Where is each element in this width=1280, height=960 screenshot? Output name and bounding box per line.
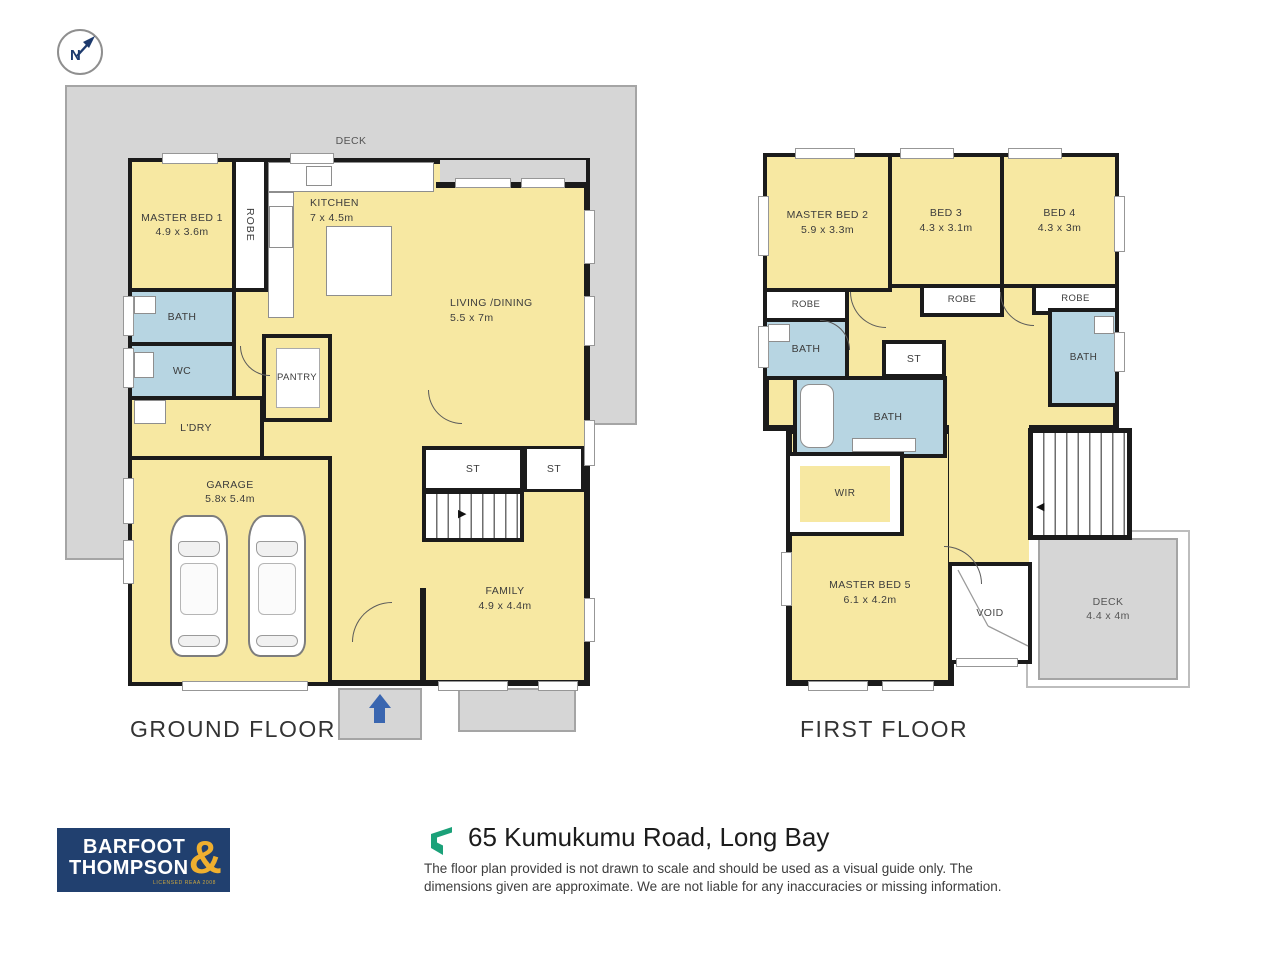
window — [1114, 196, 1125, 252]
window — [584, 598, 595, 642]
window — [584, 420, 595, 466]
rear-patio — [458, 688, 576, 732]
ground-deck-label: DECK — [65, 134, 637, 149]
room-label: MASTER BED 2 — [787, 208, 869, 222]
window — [438, 681, 508, 691]
living-dining-label-block: LIVING /DINING 5.5 x 7m — [450, 296, 533, 325]
stairs-direction-arrow: ▶ — [458, 507, 466, 520]
first-floor-title: FIRST FLOOR — [800, 716, 968, 743]
room-label: BATH — [1070, 351, 1098, 365]
car-icon — [170, 515, 228, 657]
room-label: BED 3 — [930, 206, 962, 220]
room-label: BATH — [874, 410, 903, 424]
room-label: MASTER BED 5 — [790, 578, 950, 593]
room-label: VOID — [976, 606, 1003, 620]
disclaimer-line-2: dimensions given are approximate. We are… — [424, 878, 1004, 896]
kitchen-label-block: KITCHEN 7 x 4.5m — [310, 196, 359, 225]
window — [123, 296, 134, 336]
room-robe-ground: ROBE — [232, 158, 268, 292]
window — [162, 153, 218, 164]
logo-ampersand: & — [189, 830, 222, 884]
property-address: 65 Kumukumu Road, Long Bay — [468, 822, 829, 853]
room-label: BATH — [168, 310, 197, 324]
window — [123, 478, 134, 524]
laundry-tub-icon — [134, 400, 166, 424]
window — [538, 681, 578, 691]
window — [123, 540, 134, 584]
room-label: ST — [547, 462, 561, 476]
room-dims: 4.9 x 4.4m — [450, 599, 560, 614]
room-dims: 4.3 x 3.1m — [919, 221, 972, 235]
room-label: LIVING /DINING — [450, 296, 533, 311]
sink-icon — [1094, 316, 1114, 334]
car-icon — [248, 515, 306, 657]
room-dims: 5.9 x 3.3m — [801, 223, 854, 237]
room-label: KITCHEN — [310, 196, 359, 211]
window — [882, 681, 934, 691]
room-label: PANTRY — [277, 372, 317, 385]
room-dims: 5.5 x 7m — [450, 311, 533, 326]
master-bed-5-label-block: MASTER BED 5 6.1 x 4.2m — [790, 578, 950, 607]
room-bed-4: BED 4 4.3 x 3m — [1000, 153, 1119, 288]
car-rear-window — [256, 635, 298, 647]
window — [956, 658, 1018, 667]
window — [455, 178, 511, 188]
disclaimer-text: The floor plan provided is not drawn to … — [424, 860, 1004, 896]
room-label: ST — [907, 352, 921, 366]
room-label: ST — [466, 462, 480, 476]
room-dims: 7 x 4.5m — [310, 211, 359, 226]
room-label: GARAGE — [206, 478, 253, 492]
window — [584, 296, 595, 346]
room-robe-2: ROBE — [920, 284, 1004, 317]
first-floor-deck: DECK 4.4 x 4m — [1038, 538, 1178, 680]
window — [1114, 332, 1125, 372]
room-label: FAMILY — [450, 584, 560, 599]
room-master-bed-1: MASTER BED 1 4.9 x 3.6m — [128, 158, 236, 292]
ground-floor-title: GROUND FLOOR — [130, 716, 336, 743]
address-brand-icon — [424, 824, 456, 858]
room-master-bed-2: MASTER BED 2 5.9 x 3.3m — [763, 153, 892, 292]
family-wall — [420, 588, 426, 686]
window — [758, 196, 769, 256]
sink-icon — [134, 296, 156, 314]
room-label: BED 4 — [1043, 206, 1075, 220]
window — [758, 326, 769, 368]
window — [808, 681, 868, 691]
toilet-icon — [134, 352, 154, 378]
kitchen-counter — [268, 162, 434, 192]
room-st-left: ST — [422, 446, 524, 492]
car-windshield — [178, 541, 220, 557]
window — [182, 681, 308, 691]
vanity-icon — [852, 438, 916, 452]
barfoot-thompson-logo: BARFOOT THOMPSON & LICENSED REAA 2008 — [57, 828, 230, 892]
room-label: ROBE — [243, 208, 257, 242]
kitchen-sink-icon — [306, 166, 332, 186]
logo-line1: BARFOOT — [83, 836, 185, 859]
room-label: ROBE — [792, 299, 821, 312]
logo-line2: THOMPSON — [69, 857, 189, 880]
room-label: WIR — [835, 487, 856, 501]
room-st-first: ST — [882, 340, 946, 378]
room-robe-1: ROBE — [763, 288, 849, 322]
window — [584, 210, 595, 264]
ground-stairs — [422, 490, 524, 542]
entry-arrow-icon — [369, 694, 391, 708]
stairs-direction-arrow: ◀ — [1036, 500, 1044, 513]
room-wir: WIR — [786, 452, 904, 536]
car-rear-window — [178, 635, 220, 647]
room-pantry: PANTRY — [262, 334, 332, 422]
room-dims: 4.3 x 3m — [1038, 221, 1081, 235]
window — [521, 178, 565, 188]
room-label: BATH — [792, 342, 821, 356]
kitchen-island — [326, 226, 392, 296]
room-label: DECK — [1093, 595, 1124, 609]
room-dims: 4.4 x 4m — [1086, 609, 1129, 623]
room-label: ROBE — [948, 294, 977, 307]
north-arrow-icon — [69, 33, 99, 63]
window — [795, 148, 855, 159]
first-floor-hall — [949, 420, 1029, 568]
logo-tagline: LICENSED REAA 2008 — [153, 880, 216, 886]
family-label-block: FAMILY 4.9 x 4.4m — [450, 584, 560, 613]
room-label: MASTER BED 1 — [141, 211, 223, 225]
room-st-right: ST — [524, 446, 584, 492]
room-label: L'DRY — [180, 421, 212, 435]
room-dims: 4.9 x 3.6m — [155, 225, 208, 239]
car-windshield — [256, 541, 298, 557]
window — [123, 348, 134, 388]
window — [290, 153, 334, 164]
sink-icon — [768, 324, 790, 342]
entry-arrow-stem — [374, 708, 385, 723]
room-bed-3: BED 3 4.3 x 3.1m — [888, 153, 1004, 288]
first-floor-stairs — [1028, 428, 1132, 540]
room-label: WC — [173, 364, 191, 378]
ground-deck-left-strip — [65, 423, 132, 560]
window — [1008, 148, 1062, 159]
room-dims: 5.8x 5.4m — [205, 492, 255, 506]
stove-icon — [269, 206, 293, 248]
wir-inner: WIR — [800, 466, 890, 522]
room-label: ROBE — [1061, 293, 1090, 306]
car-roof — [258, 563, 296, 615]
north-compass: N — [57, 29, 103, 75]
room-dims: 6.1 x 4.2m — [790, 593, 950, 608]
window — [900, 148, 954, 159]
car-roof — [180, 563, 218, 615]
disclaimer-line-1: The floor plan provided is not drawn to … — [424, 860, 1004, 878]
floor-plan-page: N DECK MASTER BED 1 4.9 x 3.6m ROBE BATH… — [0, 0, 1280, 960]
bathtub-icon — [800, 384, 834, 448]
